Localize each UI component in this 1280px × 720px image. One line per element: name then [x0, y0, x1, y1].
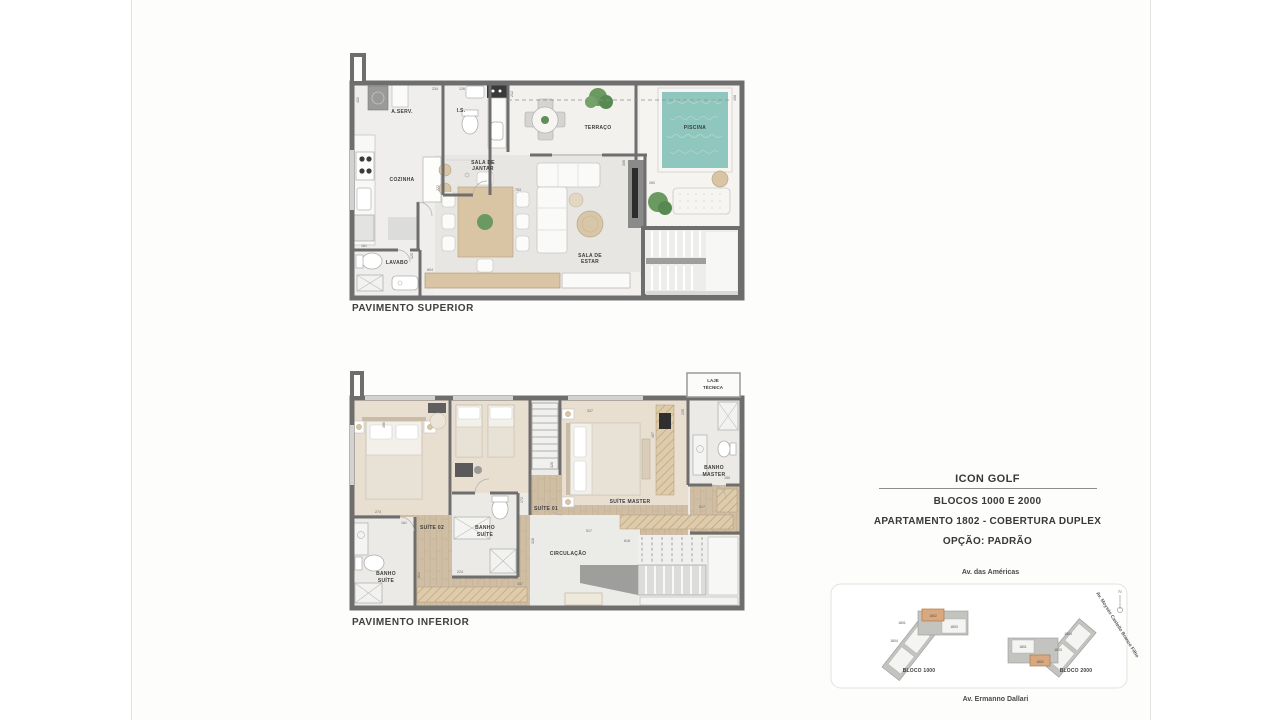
bloco-2000-label: BLOCO 2000: [1060, 668, 1093, 674]
unit-number: 1803: [1054, 648, 1062, 652]
dim-label: 172: [520, 497, 524, 503]
unit-number: 1803: [950, 625, 958, 629]
label-lavabo: LAVABO: [386, 260, 408, 266]
toilet: [364, 555, 384, 571]
laundry-tub: [392, 85, 408, 107]
stairwell-void: [532, 403, 558, 469]
washer: [368, 86, 388, 110]
blocks-line: BLOCOS 1000 E 2000: [855, 496, 1120, 507]
armchair: [577, 211, 603, 237]
street-label-top: Av. das Américas: [898, 569, 1083, 576]
sink: [466, 86, 484, 98]
dim-label: 260: [649, 181, 655, 185]
label-terraco: TERRAÇO: [585, 125, 612, 131]
title-rule: [879, 488, 1097, 489]
upper-floor-plan: PISCINA: [340, 40, 750, 302]
north-label: N: [1118, 589, 1121, 594]
upper-plan-caption: PAVIMENTO SUPERIOR: [352, 303, 474, 314]
label-banho-suite: BANHO: [376, 571, 396, 577]
dresser: [428, 403, 446, 413]
dim-label: 604: [427, 268, 433, 272]
unit-number: 1804: [890, 639, 898, 643]
toilet: [718, 441, 730, 457]
shaft: [352, 373, 362, 398]
toilet: [462, 114, 478, 134]
dim-label: 150: [724, 476, 730, 480]
dim-label: 614: [417, 572, 421, 578]
dim-label: 125: [410, 253, 414, 259]
unit-number: 1801: [1019, 645, 1027, 649]
desk-chair: [474, 466, 482, 474]
dim-label: 274: [375, 510, 381, 514]
title-block: ICON GOLF BLOCOS 1000 E 2000 APARTAMENTO…: [855, 473, 1120, 547]
side-table: [569, 193, 583, 207]
project-name: ICON GOLF: [855, 473, 1120, 485]
dim-label: 328: [531, 538, 535, 544]
label-suite-master: SUÍTE MASTER: [610, 497, 651, 505]
dim-label: 306: [382, 422, 386, 428]
dim-label: 618: [624, 539, 630, 543]
pool: PISCINA: [658, 88, 732, 172]
label-circulacao: CIRCULAÇÃO: [550, 550, 587, 557]
stool: [439, 164, 451, 176]
label-cozinha: COZINHA: [390, 177, 415, 183]
label-banho-master: MASTER: [703, 472, 726, 478]
shaft: [352, 55, 364, 83]
gourmet-sink: [491, 122, 503, 140]
dim-label: 235: [681, 409, 685, 415]
stove: [356, 152, 374, 180]
label-banho-master: BANHO: [704, 465, 724, 471]
toilet: [362, 253, 382, 269]
round-chair: [430, 413, 446, 429]
tv: [659, 413, 671, 429]
label-suite02: SUÍTE 02: [420, 523, 444, 531]
label-laje: TÉCNICA: [703, 383, 724, 390]
dim-label: 222: [436, 185, 440, 191]
wardrobe: [417, 587, 527, 602]
label-piscina: PISCINA: [684, 125, 706, 131]
dim-label: 212: [510, 91, 514, 97]
dim-label: 234: [432, 87, 438, 91]
dim-label: 161: [361, 244, 367, 248]
dim-label: 126: [459, 87, 465, 91]
street-label-bottom: Av. Ermanno Dallari: [898, 696, 1093, 703]
dim-label: 517: [699, 505, 705, 509]
kitchen-sink: [357, 188, 371, 210]
unit-number: 1804: [1064, 632, 1072, 636]
sofa-chaise: [537, 187, 567, 253]
label-banho-suite: BANHO: [475, 525, 495, 531]
dim-label: 408: [733, 95, 737, 101]
label-is: I.S.: [457, 108, 466, 114]
vanity: [354, 523, 368, 555]
daybed: [673, 188, 730, 214]
fridge: [354, 215, 374, 241]
tv-panel: [632, 168, 638, 218]
wardrobe: [620, 515, 733, 529]
dim-label: 517: [586, 529, 592, 533]
dim-label: 306: [622, 160, 626, 166]
site-plan: 1802 1801 1803 1804 BLOCO 1000 1801 1802…: [830, 583, 1140, 693]
label-laje: LAJE: [707, 378, 719, 383]
dim-label: 307: [517, 582, 523, 586]
bloco-1000-label: BLOCO 1000: [903, 668, 936, 674]
label-banho-suite: SUÍTE: [477, 530, 494, 538]
bench: [642, 439, 650, 479]
unit-number: 1802: [1036, 660, 1044, 664]
dim-label: 326: [550, 462, 554, 468]
unit-number: 1801: [898, 621, 906, 625]
sink: [392, 276, 418, 290]
label-suite01: SUÍTE 01: [534, 504, 558, 512]
dim-label: 753: [515, 188, 521, 192]
island: [423, 157, 441, 202]
planter: [425, 273, 630, 288]
table-plant: [477, 214, 493, 230]
linen-closet: [717, 489, 737, 512]
option-line: OPÇÃO: PADRÃO: [855, 536, 1120, 547]
laje-tecnica: LAJE TÉCNICA: [687, 373, 740, 397]
desk: [455, 463, 473, 477]
label-sala-jantar: JANTAR: [472, 166, 494, 172]
label-aserv: A.SERV.: [391, 109, 413, 115]
bench: [565, 593, 602, 605]
floor-plan-sheet: PISCINA: [0, 0, 1280, 720]
upper-stairs: [643, 228, 740, 296]
dim-label: 407: [651, 432, 655, 438]
hall-rug: [388, 217, 417, 240]
label-banho-suite: SUÍTE: [378, 576, 395, 584]
dim-label: 337: [587, 409, 593, 413]
dim-label: 224: [457, 570, 463, 574]
pouf: [712, 171, 728, 187]
lower-plan-caption: PAVIMENTO INFERIOR: [352, 617, 469, 628]
dim-label: 402: [356, 97, 360, 103]
unit-number: 1802: [929, 614, 937, 618]
sofa: [537, 163, 600, 187]
lower-floor-plan: LAJE TÉCNICA SUÍTE 02 BANHO SUÍTE BANHO …: [340, 365, 750, 615]
dim-label: 161: [401, 521, 407, 525]
apartment-line: APARTAMENTO 1802 - COBERTURA DUPLEX: [855, 516, 1120, 527]
tv-wall: [628, 160, 644, 228]
label-sala-estar: ESTAR: [581, 259, 599, 265]
